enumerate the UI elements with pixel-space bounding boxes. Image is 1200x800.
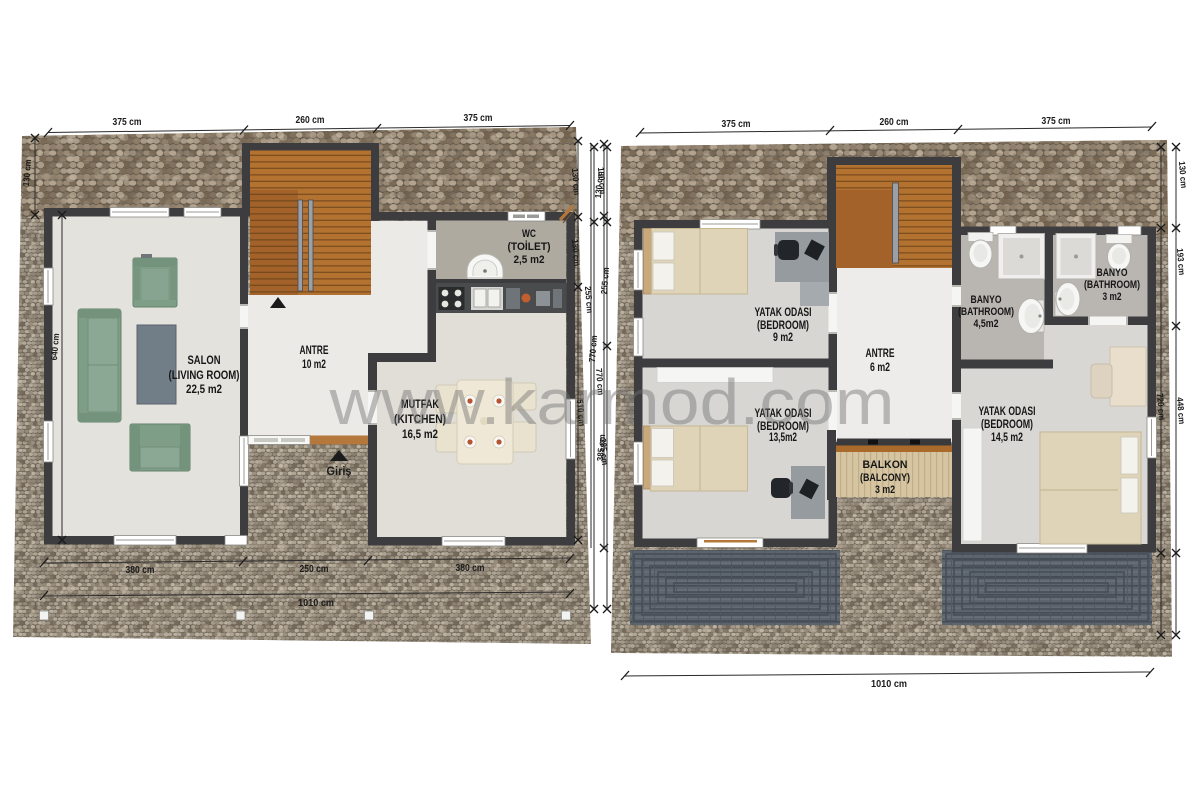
svg-text:250 cm: 250 cm bbox=[300, 564, 329, 575]
svg-text:10 m2: 10 m2 bbox=[302, 357, 326, 371]
svg-text:1010 cm: 1010 cm bbox=[298, 598, 334, 609]
svg-text:Giriş: Giriş bbox=[327, 464, 352, 478]
svg-text:(BATHROOM): (BATHROOM) bbox=[1084, 279, 1140, 291]
svg-text:1010 cm: 1010 cm bbox=[871, 679, 907, 690]
svg-text:(BALCONY): (BALCONY) bbox=[860, 472, 910, 484]
svg-text:(TOİLET): (TOİLET) bbox=[508, 240, 551, 253]
svg-text:260 cm: 260 cm bbox=[880, 117, 909, 128]
svg-text:380 cm: 380 cm bbox=[456, 563, 485, 574]
svg-text:ANTRE: ANTRE bbox=[866, 346, 895, 360]
svg-text:9 m2: 9 m2 bbox=[773, 330, 793, 344]
svg-text:375 cm: 375 cm bbox=[113, 117, 142, 128]
svg-text:WC: WC bbox=[522, 228, 536, 240]
svg-text:22,5 m2: 22,5 m2 bbox=[186, 382, 222, 396]
svg-text:(BEDROOM): (BEDROOM) bbox=[981, 417, 1033, 431]
svg-text:BALKON: BALKON bbox=[863, 459, 908, 471]
svg-text:375 cm: 375 cm bbox=[1042, 116, 1071, 127]
svg-text:2,5 m2: 2,5 m2 bbox=[514, 254, 545, 266]
svg-text:BANYO: BANYO bbox=[971, 294, 1002, 306]
svg-text:375 cm: 375 cm bbox=[722, 119, 751, 130]
svg-text:YATAK ODASI: YATAK ODASI bbox=[755, 305, 812, 319]
svg-text:4,5m2: 4,5m2 bbox=[974, 318, 999, 330]
svg-text:(BATHROOM): (BATHROOM) bbox=[958, 306, 1014, 318]
svg-text:SALON: SALON bbox=[188, 353, 221, 367]
svg-text:260 cm: 260 cm bbox=[296, 115, 325, 126]
svg-text:3 m2: 3 m2 bbox=[1103, 291, 1122, 303]
svg-text:YATAK ODASI: YATAK ODASI bbox=[979, 404, 1036, 418]
svg-text:380 cm: 380 cm bbox=[126, 565, 155, 576]
svg-text:(LIVING ROOM): (LIVING ROOM) bbox=[169, 368, 240, 382]
svg-text:www.karmod.com: www.karmod.com bbox=[328, 366, 894, 438]
svg-text:14,5 m2: 14,5 m2 bbox=[991, 430, 1023, 444]
svg-text:3 m2: 3 m2 bbox=[875, 484, 895, 496]
svg-text:ANTRE: ANTRE bbox=[300, 343, 329, 357]
svg-text:375 cm: 375 cm bbox=[464, 113, 493, 124]
svg-text:BANYO: BANYO bbox=[1097, 267, 1128, 279]
